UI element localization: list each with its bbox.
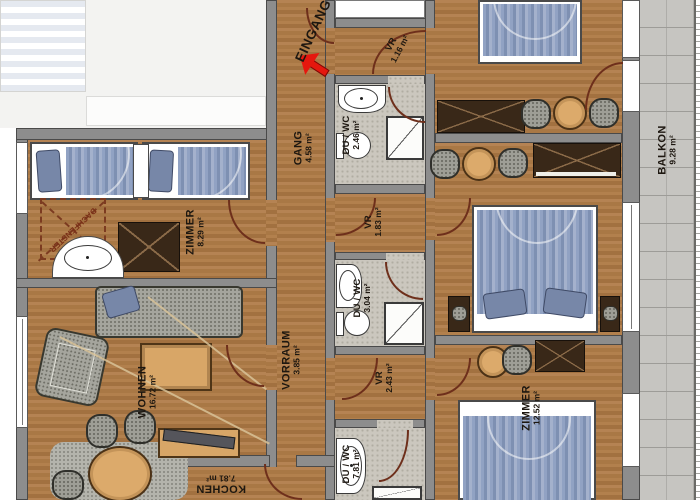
wardrobe — [437, 100, 525, 133]
label-du-wc-low: DU / WC 7.81 m² — [342, 445, 362, 484]
single-bed-left — [30, 142, 138, 200]
stool — [498, 148, 528, 178]
single-bed-right — [142, 142, 250, 200]
label-vr-low: VR 2.43 m² — [375, 363, 395, 392]
faded-window-block — [0, 0, 86, 92]
double-bed-mid — [472, 205, 598, 333]
bed-duvet — [483, 4, 577, 56]
double-bed-top — [478, 0, 582, 64]
opening-du-low — [377, 420, 413, 428]
balcony-floor — [640, 0, 694, 500]
balcony-door-gap-top — [622, 60, 640, 112]
bedside-table — [600, 296, 620, 332]
balcony-railing — [694, 0, 700, 500]
label-kochen: KOCHEN 7.81 m² — [196, 473, 246, 494]
label-zimmer-left: ZIMMER 8.29 m² — [184, 209, 205, 255]
wall-stair-bottom — [335, 18, 430, 28]
window-mullion — [631, 205, 632, 329]
window-balcony-top — [622, 0, 640, 58]
faucet-dot — [86, 256, 89, 259]
faded-wall-block — [86, 96, 266, 126]
stool — [430, 149, 460, 179]
window-mullion — [22, 319, 23, 425]
wall-h2 — [335, 184, 425, 194]
opening-du-top — [388, 76, 424, 84]
label-balkon: BALKON 9.28 m² — [656, 125, 677, 174]
pillow — [36, 149, 63, 193]
wardrobe-shelf — [536, 172, 616, 176]
shower — [372, 486, 422, 500]
window-balcony-mid — [622, 202, 640, 332]
dining-chair — [86, 414, 118, 448]
bedside-plant — [452, 306, 467, 321]
bed-duvet — [178, 147, 246, 195]
pillow — [148, 149, 174, 192]
label-du-wc-mid: DU / WC 3.04 m² — [353, 279, 373, 318]
label-gang: GANG 4.58 m² — [292, 131, 313, 166]
dining-table — [88, 446, 152, 500]
label-zimmer-right-bottom: ZIMMER 12.52 m² — [520, 385, 541, 431]
wall-corridor-left — [266, 0, 277, 500]
faucet-dot — [360, 97, 363, 100]
dining-chair — [52, 470, 84, 500]
round-table — [553, 96, 587, 130]
floor-stairwell — [335, 0, 425, 18]
opening-room-mid — [426, 198, 435, 240]
window-balcony-bottom — [622, 393, 640, 467]
opening-vr-mid — [326, 198, 335, 242]
wardrobe-left-bedroom — [118, 222, 180, 272]
toilet-tank — [336, 312, 344, 336]
bedside-plant — [603, 306, 618, 321]
wall-right-rooms-2 — [435, 335, 622, 345]
opening-zimmer-left — [266, 200, 277, 246]
floor-plan: EINGANG GANG 4.58 m² VR 1.16 m² DU / WC … — [0, 0, 700, 500]
label-vr-mid: VR 1.83 m² — [364, 207, 384, 236]
pillow — [542, 287, 587, 319]
wall-top-left — [16, 128, 277, 140]
opening-wohnen — [266, 345, 277, 390]
wardrobe — [533, 143, 621, 178]
bed-duvet — [66, 147, 134, 195]
opening-room-top — [426, 28, 435, 74]
wardrobe — [535, 340, 585, 372]
faded-adjacent-plan — [0, 0, 266, 128]
label-du-wc-top: DU / WC 2.46 m² — [342, 116, 362, 155]
shower — [384, 302, 424, 345]
window-left-bedroom — [16, 142, 28, 214]
pillow — [482, 288, 527, 320]
round-table — [462, 147, 496, 181]
stool — [502, 345, 532, 375]
window-left-living — [16, 316, 28, 428]
label-wohnen: WOHNEN 16.72 m² — [136, 366, 157, 419]
stool — [521, 99, 551, 129]
shower — [386, 116, 424, 160]
wall-right-rooms-1 — [435, 133, 622, 143]
wall-bath-right — [425, 0, 435, 500]
opening-vr-low — [326, 358, 335, 400]
nightstand — [133, 144, 149, 198]
wall-h4 — [335, 346, 425, 355]
opening-du-mid — [386, 253, 424, 260]
label-vorraum: VORRAUM 3.85 m² — [280, 330, 301, 390]
opening-room-low — [426, 358, 435, 400]
bedside-table — [448, 296, 470, 332]
